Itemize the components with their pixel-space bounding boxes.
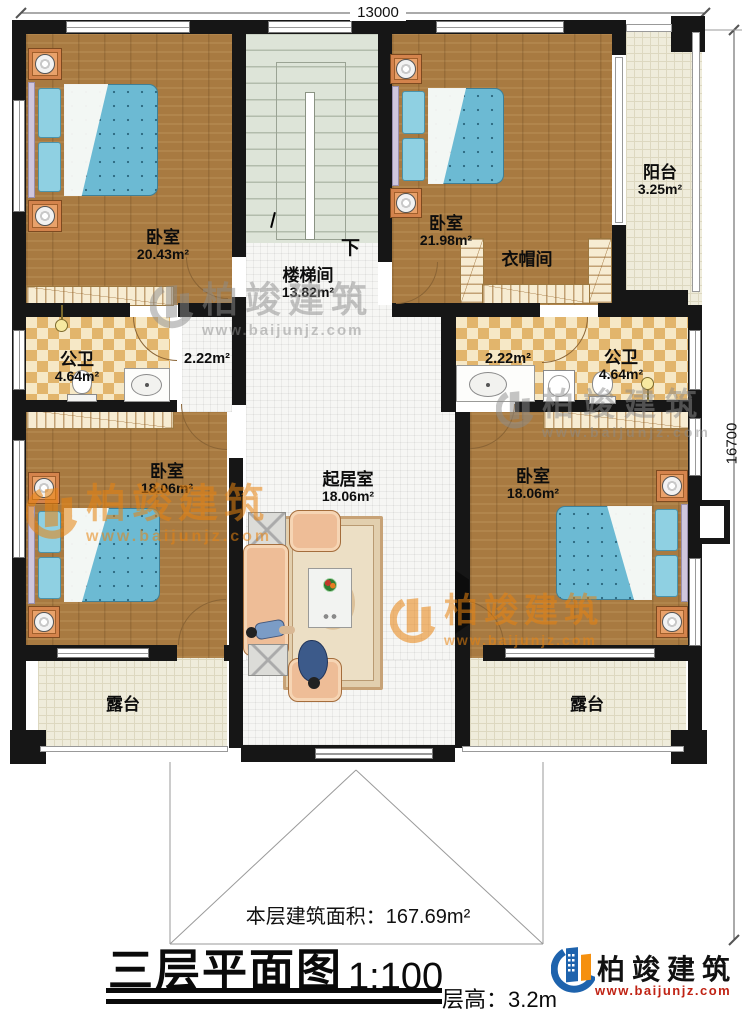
bed-pillow — [655, 509, 678, 551]
chimney-core — [700, 506, 724, 538]
brand-url: www.baijunjz.com — [595, 983, 731, 998]
brand-name: 柏竣建筑 — [597, 948, 737, 988]
bed-pillow — [38, 142, 61, 192]
window-top-bedroom-tl — [66, 21, 190, 33]
bed-pillow — [402, 138, 425, 181]
lamp-bath-left — [55, 319, 68, 332]
brand-logo-icon — [551, 942, 595, 1002]
bed-pillow — [38, 88, 61, 138]
wall-balcony-pier-top — [612, 33, 626, 55]
bed-pillow — [38, 557, 61, 599]
bed-headboard — [28, 506, 35, 604]
cloakroom-wardrobe-right — [588, 238, 612, 304]
label-terrace-left: 露台 — [73, 695, 173, 714]
dimension-right: 16700 — [724, 414, 741, 474]
window-bottom-bedroom-br — [505, 648, 655, 658]
bed-headboard — [392, 86, 399, 186]
balcony-sliding-door — [615, 57, 623, 223]
sink-basin-right — [469, 372, 507, 397]
wall-bedroom-bl-bottom-b — [224, 645, 236, 661]
window-left-bedroom-tl — [13, 100, 25, 212]
label-cloakroom: 衣帽间 — [477, 250, 577, 269]
side-table-bottom — [248, 644, 288, 676]
bed-headboard — [681, 504, 688, 602]
window-right-bedroom-br-b — [689, 558, 701, 646]
tv-on-wall — [455, 570, 469, 634]
armchair-top — [289, 510, 341, 552]
wall-bath-left-top-b — [178, 303, 246, 317]
nightstand — [28, 200, 62, 232]
toilet-left-tank — [67, 394, 97, 402]
window-living-bottom — [315, 748, 433, 759]
wall-bath-left-top-a — [26, 303, 130, 317]
window-top-bedroom-tr — [436, 21, 564, 33]
label-bath-right: 公卫 4.64m² — [571, 348, 671, 383]
window-bottom-bedroom-bl — [57, 648, 149, 658]
window-right-bath — [689, 330, 701, 390]
wall-tl-stair — [232, 20, 246, 257]
wall-hall-right — [441, 305, 456, 412]
nightstand — [656, 470, 688, 502]
bed-bedroom-br — [556, 504, 688, 602]
nightstand — [656, 606, 688, 638]
closet-bedroom-bl — [26, 409, 174, 429]
label-living: 起居室 18.06m² — [298, 470, 398, 505]
dimension-top: 13000 — [350, 4, 406, 21]
lamp-stem-right — [647, 390, 649, 402]
title-underline-1 — [106, 988, 442, 993]
wall-balcony-bottom — [612, 290, 688, 304]
stair-down-label: 下 — [341, 233, 360, 260]
person-lying — [246, 614, 298, 646]
bed-pillow — [38, 511, 61, 553]
person-body — [298, 640, 328, 682]
label-stairwell: 楼梯间 13.82m² — [258, 266, 358, 301]
person-head — [246, 627, 257, 638]
label-balcony: 阳台 3.25m² — [610, 163, 710, 198]
label-hall-left-area: 2.22m² — [167, 351, 247, 367]
toilet-right-tank — [589, 396, 616, 404]
label-hall-right-area: 2.22m² — [468, 351, 548, 367]
nightstand — [28, 606, 60, 638]
bed-pillow — [402, 91, 425, 134]
closet-bedroom-br — [543, 409, 690, 429]
wall-bedroom-tr-bottom-b — [598, 303, 688, 317]
label-terrace-right: 露台 — [537, 695, 637, 714]
label-bedroom-tr: 卧室 21.98m² — [396, 214, 496, 249]
person-sitting — [296, 640, 332, 692]
person-head — [308, 677, 320, 689]
cloakroom-wardrobe-bottom — [482, 284, 590, 304]
person-legs — [279, 626, 295, 634]
wall-bedroom-tr-bottom-a — [392, 303, 540, 317]
label-bedroom-br: 卧室 18.06m² — [483, 467, 583, 502]
balcony-railing-top — [626, 24, 672, 32]
terrace-right-railing — [462, 746, 684, 752]
bed-headboard — [28, 82, 35, 198]
floor-area-note: 本层建筑面积：167.69m² — [238, 900, 478, 929]
label-bedroom-bl: 卧室 18.06m² — [117, 462, 217, 497]
bed-pillow — [655, 555, 678, 597]
window-left-bedroom-bl — [13, 440, 25, 558]
wall-balcony-pier-bottom — [612, 225, 626, 292]
nightstand — [28, 472, 60, 504]
coffee-table — [308, 568, 352, 628]
stair-center-rail — [305, 92, 315, 240]
label-bath-left: 公卫 4.64m² — [27, 350, 127, 385]
floorplan-canvas: 下 — [0, 0, 750, 1013]
side-table-top — [248, 512, 286, 548]
balcony-railing-right — [692, 32, 700, 292]
bed-bedroom-tr — [392, 86, 504, 186]
sink-basin-left — [131, 374, 162, 396]
window-top-stairwell — [268, 21, 352, 33]
wall-hall-left-b — [229, 458, 243, 748]
label-bedroom-tl: 卧室 20.43m² — [113, 228, 213, 263]
window-left-bath — [13, 330, 25, 390]
bed-bedroom-bl — [28, 506, 160, 604]
floor-height-note: 层高：3.2m — [442, 982, 557, 1013]
terrace-left-railing — [40, 746, 228, 752]
nightstand — [390, 54, 422, 84]
window-right-bedroom-br-a — [689, 418, 701, 476]
title-underline-2 — [106, 999, 442, 1004]
bed-bedroom-tl — [28, 82, 158, 198]
nightstand — [28, 48, 62, 80]
